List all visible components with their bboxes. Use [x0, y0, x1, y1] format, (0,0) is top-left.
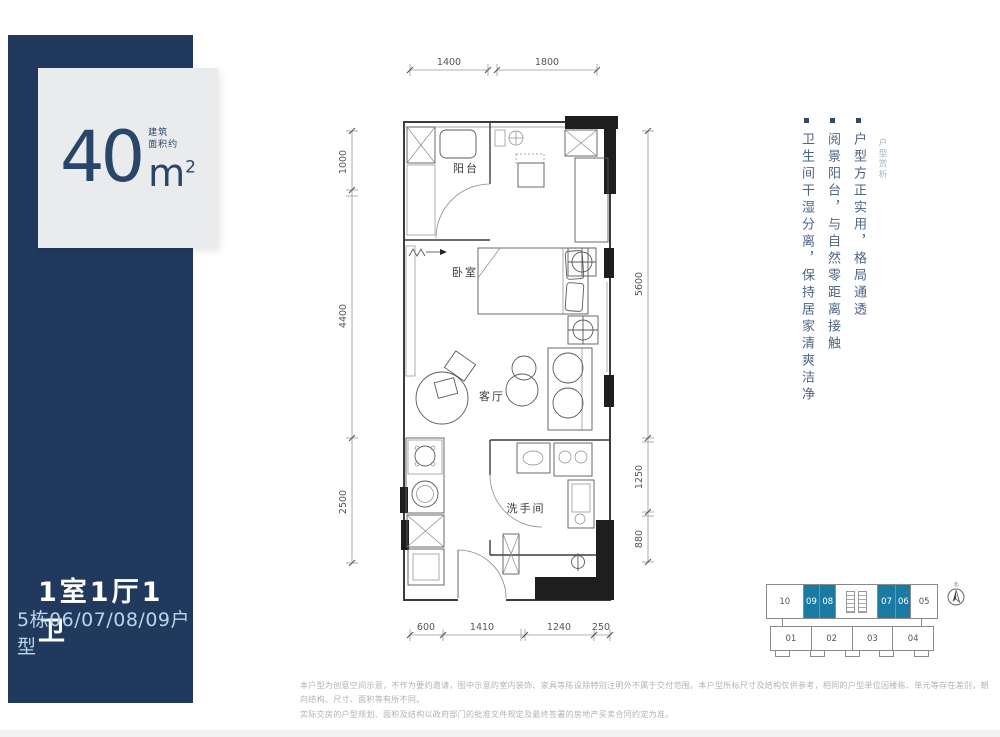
disclaimer-line-2: 实际交房的户型规划、面积及结构以政府部门的批准文件规定及最终签署的房地产买卖合同…: [300, 708, 995, 722]
column-symbol-2: [568, 316, 598, 344]
stove: [408, 440, 442, 474]
shower-unit: [568, 480, 594, 528]
entry-area: [458, 534, 519, 598]
balcony-tab: [845, 651, 860, 657]
building-key-plan: 10 09 08 07 06 05 01 02 03 04: [766, 584, 938, 657]
analysis-bullet-1: 户型方正实用，格局通透: [850, 118, 867, 319]
dimension-top: 1400 1800: [407, 57, 600, 76]
shoe-cabinet: [408, 549, 444, 585]
balcony-chair: [440, 130, 476, 158]
stool-small: [512, 356, 536, 380]
vanity-counter: [554, 443, 592, 476]
stool-large: [506, 374, 538, 406]
unit-cell-08-highlighted: 08: [820, 585, 836, 618]
unit-cell-04: 04: [893, 627, 933, 650]
washing-machine: [407, 127, 435, 163]
svg-text:600: 600: [417, 622, 435, 633]
svg-text:1410: 1410: [470, 622, 494, 633]
area-superscript: 2: [185, 157, 196, 177]
page-bottom-strip: [0, 730, 1000, 737]
analysis-column: 户型赏析 户型方正实用，格局通透 阅景阳台，与自然零距离接触 卫生间干湿分离，保…: [798, 118, 888, 404]
balcony-tab: [879, 651, 894, 657]
disclaimer-line-1: 本户型为创意空间示意，不作为要约邀请，图中示意的室内装饰、家具等陈设除特别注明外…: [300, 679, 995, 708]
svg-text:880: 880: [634, 530, 645, 548]
area-card: 40 建筑 面积约 m2: [38, 68, 218, 248]
entry-door-arc: [458, 550, 506, 598]
elevator-icon: [858, 591, 867, 613]
living-area: 客厅: [416, 316, 598, 430]
unit-cell-05: 05: [911, 585, 937, 618]
bullet-square-icon: [856, 118, 861, 123]
unit-cell-09-highlighted: 09: [804, 585, 821, 618]
plan-walls: [400, 116, 618, 600]
drying-rack: [407, 165, 435, 235]
elevator-icon: [846, 591, 855, 613]
bullet-square-icon: [804, 118, 809, 123]
dining-table: [416, 351, 476, 424]
hall-cabinet-x: [503, 534, 519, 574]
unit-cell-10: 10: [767, 585, 804, 618]
washbasin: [517, 443, 550, 473]
unit-cell-03: 03: [853, 627, 894, 650]
kitchen-cabinet-x: [407, 515, 444, 547]
bedroom-label: 卧室: [452, 265, 478, 279]
sofa: [548, 348, 592, 430]
unit-cell-07-highlighted: 07: [878, 585, 897, 618]
dimension-left: 1000 4400 2500: [338, 128, 358, 566]
svg-text:1250: 1250: [634, 465, 645, 489]
unit-cell-02: 02: [812, 627, 853, 650]
balcony-tab: [810, 651, 825, 657]
elevator-core-cell: [836, 585, 878, 618]
svg-text:1000: 1000: [338, 150, 349, 174]
bed: [478, 248, 588, 314]
balcony-door-arc: [436, 184, 490, 238]
disclaimer-text: 本户型为创意空间示意，不作为要约邀请，图中示意的室内装饰、家具等陈设除特别注明外…: [300, 679, 995, 722]
svg-text:1800: 1800: [535, 57, 559, 68]
svg-text:北: 北: [953, 581, 958, 588]
svg-text:1240: 1240: [547, 622, 571, 633]
svg-text:4400: 4400: [338, 304, 349, 328]
analysis-label: 户型赏析: [876, 118, 888, 180]
balcony-tab: [775, 651, 790, 657]
kitchen-sink: [412, 481, 438, 507]
bullet-square-icon: [830, 118, 835, 123]
svg-text:250: 250: [592, 622, 610, 633]
balcony-label: 阳台: [453, 161, 479, 175]
unit-cell-01: 01: [771, 627, 812, 650]
area-unit: m2: [148, 154, 196, 192]
unit-cell-06-highlighted: 06: [896, 585, 911, 618]
dimension-bottom: 600 1410 1240 250: [407, 622, 613, 641]
wardrobe-closet: [575, 158, 608, 242]
dimension-right: 5600 1250 880: [634, 128, 654, 565]
north-compass-icon: 北: [944, 580, 968, 610]
balcony-tab: [914, 651, 929, 657]
side-cabinet: [406, 246, 415, 376]
left-brand-panel: 40 建筑 面积约 m2 1室1厅1卫 5栋06/07/08/09户型: [8, 35, 193, 703]
desk: [495, 130, 544, 187]
bedroom-area: 卧室: [406, 130, 608, 376]
area-value: 40: [60, 124, 141, 191]
bathroom-label: 洗手间: [507, 501, 546, 515]
svg-text:5600: 5600: [634, 272, 645, 296]
floor-plan-drawing: 1400 1800 1000 4400 2500 5600 1250 880 6…: [330, 50, 670, 650]
analysis-bullet-2: 阅景阳台，与自然零距离接触: [824, 118, 841, 353]
balcony-area: 阳台: [407, 127, 490, 256]
bathroom-door-arc: [490, 475, 542, 527]
balcony-tabs: [775, 651, 929, 657]
corridor: [782, 619, 922, 626]
kitchen-area: [406, 438, 444, 585]
door-viewer-symbol: [572, 553, 585, 571]
svg-text:2500: 2500: [338, 490, 349, 514]
living-label: 客厅: [479, 389, 505, 403]
svg-text:1400: 1400: [437, 57, 461, 68]
unit-subtitle: 5栋06/07/08/09户型: [17, 605, 193, 659]
area-note-line1: 建筑: [148, 128, 196, 140]
analysis-bullet-3: 卫生间干湿分离，保持居家清爽洁净: [798, 118, 815, 404]
bathroom-area: 洗手间: [490, 443, 594, 571]
